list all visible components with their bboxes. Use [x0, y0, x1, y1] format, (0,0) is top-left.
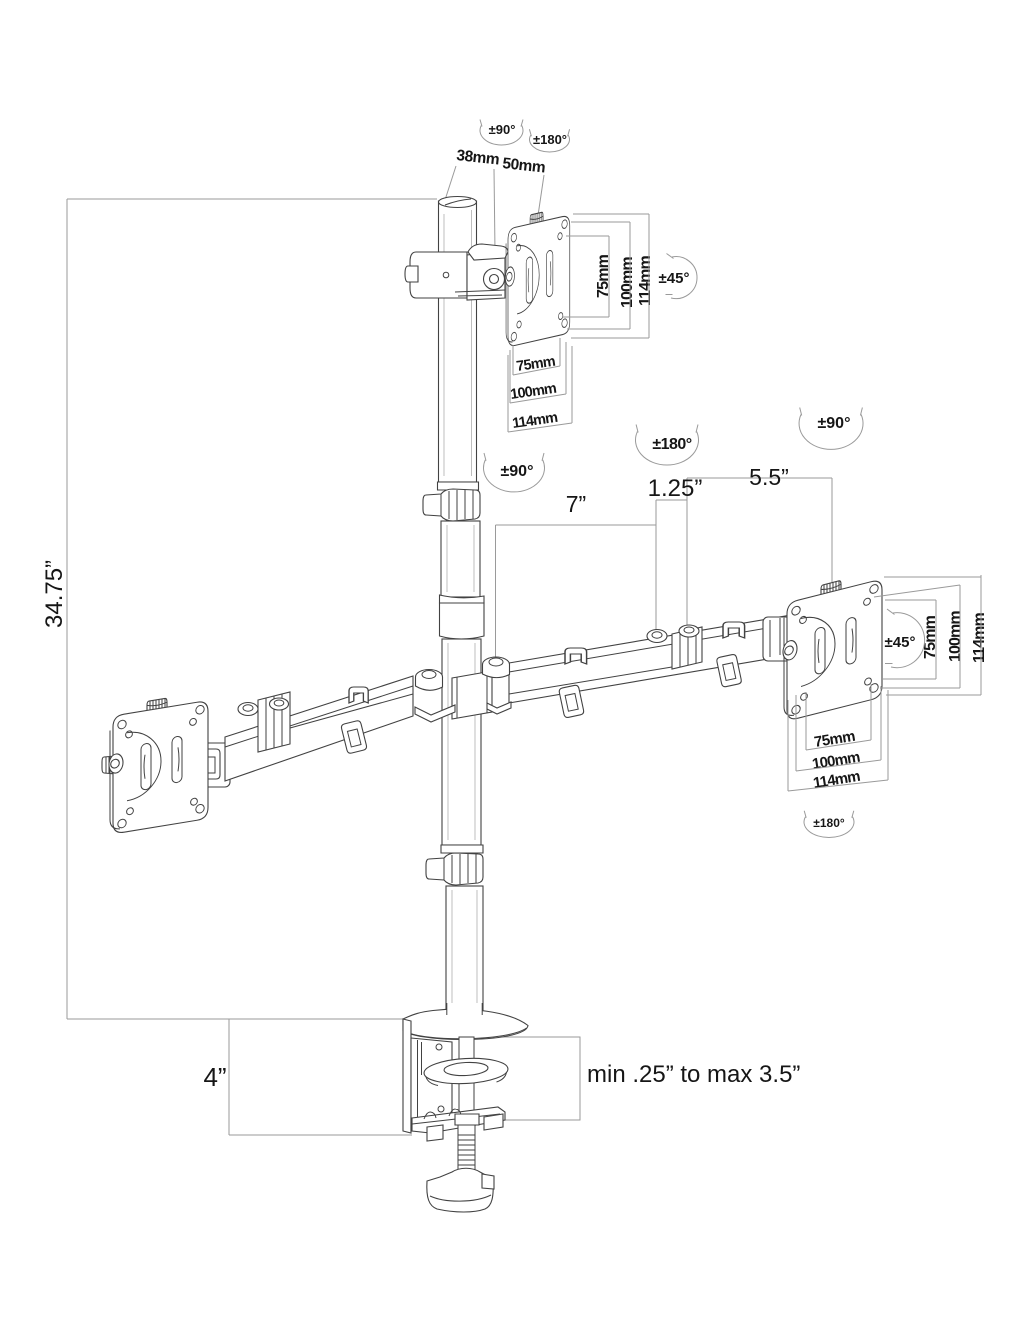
svg-text:100mm: 100mm	[947, 611, 964, 662]
svg-text:±45°: ±45°	[659, 270, 690, 287]
svg-text:±45°: ±45°	[885, 634, 916, 651]
svg-text:114mm: 114mm	[637, 256, 654, 306]
svg-text:114mm: 114mm	[971, 613, 988, 663]
svg-text:1.25”: 1.25”	[648, 475, 703, 502]
svg-text:5.5”: 5.5”	[749, 464, 789, 490]
svg-text:±180°: ±180°	[652, 436, 691, 453]
svg-text:±180°: ±180°	[813, 816, 845, 830]
svg-text:34.75”: 34.75”	[41, 560, 68, 628]
svg-text:4”: 4”	[203, 1062, 226, 1092]
svg-text:±90°: ±90°	[818, 415, 851, 432]
svg-text:100mm: 100mm	[619, 257, 636, 308]
svg-text:±90°: ±90°	[501, 463, 534, 480]
svg-text:±90°: ±90°	[489, 122, 516, 137]
svg-text:min .25” to max 3.5”: min .25” to max 3.5”	[587, 1061, 800, 1088]
svg-text:±180°: ±180°	[533, 132, 567, 147]
svg-text:7”: 7”	[566, 491, 586, 517]
